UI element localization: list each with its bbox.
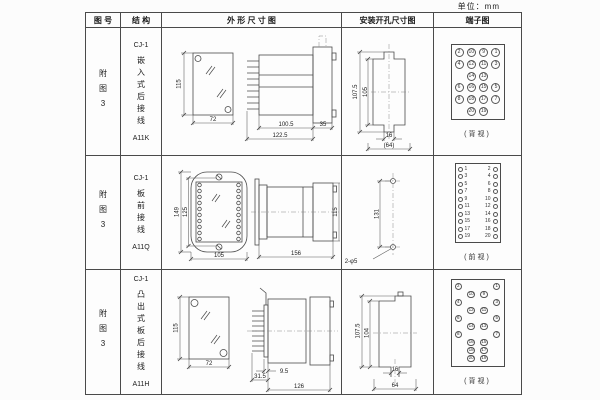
terminal-circle bbox=[493, 167, 498, 172]
terminal-circle: 15 bbox=[480, 339, 488, 347]
terminal-row: 1112 bbox=[458, 204, 498, 209]
terminal-row: 1718 bbox=[458, 227, 498, 232]
front-view: 115 72 bbox=[173, 295, 231, 369]
terminal-row: 1516 bbox=[458, 219, 498, 224]
dim-label: 72 bbox=[205, 361, 212, 367]
dim-label: 107.5 bbox=[355, 323, 361, 339]
row2-terminal-cell: 1234567891011121314151617181920 (前视) bbox=[434, 156, 521, 270]
terminal-number: 6 bbox=[488, 182, 491, 187]
terminal-row: 34 bbox=[458, 174, 498, 179]
terminal-circle: 13 bbox=[479, 72, 488, 81]
structure-desc: 凸出式板后接线 bbox=[136, 290, 147, 374]
terminal-row: 1615 bbox=[455, 339, 501, 347]
model-label: CJ-1 bbox=[134, 42, 149, 49]
terminal-number: 10 bbox=[485, 197, 491, 202]
terminal-row: 1413 bbox=[455, 323, 501, 331]
terminal-row: 818177 bbox=[455, 95, 501, 104]
terminal-number: 13 bbox=[465, 212, 471, 217]
terminal-circle bbox=[493, 219, 498, 224]
terminal-circle: 8 bbox=[455, 95, 464, 104]
terminal-circle: 11 bbox=[480, 307, 488, 315]
header-terminal: 端子图 bbox=[434, 13, 521, 28]
dim-label: 156 bbox=[290, 251, 301, 257]
terminal-circle bbox=[493, 189, 498, 194]
fig-no-label: 附图3 bbox=[98, 69, 109, 115]
terminal-number: 9 bbox=[465, 197, 468, 202]
terminal-circle bbox=[493, 227, 498, 232]
terminal-circle: 1 bbox=[491, 48, 500, 57]
row3-terminal-cell: 2110943121165141387161518172019 (背视) bbox=[434, 270, 521, 394]
terminal-circle: 17 bbox=[479, 95, 488, 104]
terminal-circle: 11 bbox=[479, 60, 488, 69]
side-view: 100.5 35 122.5 bbox=[245, 36, 336, 141]
terminal-circle: 5 bbox=[491, 83, 500, 92]
dim-label: 125 bbox=[183, 206, 189, 217]
terminal-circle bbox=[458, 174, 463, 179]
terminal-row: 1920 bbox=[458, 234, 498, 239]
terminal-number: 5 bbox=[465, 182, 468, 187]
dim-label: 149 bbox=[174, 206, 180, 217]
terminal-circle bbox=[493, 212, 498, 217]
dim-label: 16 bbox=[391, 367, 398, 373]
install-drawing-a11k: 107.5 105 16 (64) bbox=[343, 29, 433, 155]
row1-fig-no: 附图3 bbox=[86, 28, 121, 156]
dim-label: 9.5 bbox=[279, 369, 288, 375]
dim-label: 122.5 bbox=[272, 133, 288, 139]
terminal-circle bbox=[493, 182, 498, 187]
dim-label: 104 bbox=[364, 327, 370, 338]
row3-fig-no: 附图3 bbox=[86, 270, 121, 394]
row2-install-cell: 131 2-φ5 bbox=[342, 156, 434, 270]
terminal-circle bbox=[493, 174, 498, 179]
row2-fig-no: 附图3 bbox=[86, 156, 121, 270]
fig-no-label: 附图3 bbox=[98, 190, 109, 236]
terminal-row: 2019 bbox=[455, 107, 501, 116]
terminal-circle: 7 bbox=[491, 95, 500, 104]
terminal-circle: 17 bbox=[480, 347, 488, 355]
terminal-row: 78 bbox=[458, 189, 498, 194]
model-label: CJ-1 bbox=[134, 276, 149, 283]
unit-label: 单位：mm bbox=[458, 1, 500, 12]
install-drawing-a11h: 107.5 104 16 64 bbox=[343, 271, 433, 393]
terminal-circle bbox=[458, 234, 463, 239]
terminal-number: 2 bbox=[488, 167, 491, 172]
terminal-row: 1314 bbox=[458, 212, 498, 217]
terminal-circle: 1 bbox=[493, 283, 501, 291]
header-structure: 结 构 bbox=[121, 13, 162, 28]
terminal-circle bbox=[493, 234, 498, 239]
terminal-circle: 15 bbox=[479, 83, 488, 92]
terminal-circle: 20 bbox=[467, 107, 476, 116]
row2-outline-cell: 149 125 105 bbox=[162, 156, 342, 270]
outline-drawing-a11k: 115 72 100.5 bbox=[163, 29, 341, 155]
row1-structure: CJ-1 嵌入式后接线 A11K bbox=[121, 28, 162, 156]
terminal-circle: 3 bbox=[491, 60, 500, 69]
terminal-circle bbox=[493, 204, 498, 209]
type-code: A11Q bbox=[132, 244, 149, 251]
terminal-number: 4 bbox=[488, 174, 491, 179]
terminal-circle bbox=[493, 197, 498, 202]
terminal-circle bbox=[458, 219, 463, 224]
row3-outline-cell: 115 72 9 bbox=[162, 270, 342, 394]
terminal-caption: (背视) bbox=[464, 376, 491, 386]
row1-install-cell: 107.5 105 16 (64) bbox=[342, 28, 434, 156]
terminal-row: 1211 bbox=[455, 307, 501, 315]
terminal-number: 12 bbox=[485, 204, 491, 209]
terminal-circle bbox=[458, 182, 463, 187]
terminal-diagram-a11h: 2110943121165141387161518172019 bbox=[451, 279, 505, 367]
terminal-circle: 8 bbox=[455, 331, 463, 339]
terminal-row: 21 bbox=[455, 283, 501, 291]
terminal-number: 14 bbox=[485, 212, 491, 217]
terminal-number: 20 bbox=[485, 234, 491, 239]
terminal-circle: 19 bbox=[479, 107, 488, 116]
terminal-circle: 19 bbox=[480, 355, 488, 363]
dim-label: 107.5 bbox=[353, 83, 359, 99]
dim-label: 115 bbox=[176, 78, 182, 88]
terminal-number: 1 bbox=[465, 167, 468, 172]
terminal-circle: 14 bbox=[467, 72, 476, 81]
dim-label: (64) bbox=[383, 143, 394, 149]
terminal-circle: 20 bbox=[467, 355, 475, 363]
terminal-row: 65 bbox=[455, 315, 501, 323]
terminal-circle: 6 bbox=[455, 315, 463, 323]
dim-label: 105 bbox=[213, 253, 224, 259]
terminal-circle: 9 bbox=[479, 48, 488, 57]
terminal-circle: 10 bbox=[467, 291, 475, 299]
structure-desc: 板前接线 bbox=[135, 189, 146, 237]
type-code: A11K bbox=[133, 135, 150, 142]
terminal-circle: 4 bbox=[455, 60, 464, 69]
terminal-number: 3 bbox=[465, 174, 468, 179]
dim-label: 115 bbox=[333, 206, 339, 216]
dim-label: 115 bbox=[173, 323, 179, 333]
hole-label: 2-φ5 bbox=[344, 259, 357, 265]
dim-label: 64 bbox=[391, 383, 398, 389]
terminal-number: 16 bbox=[485, 219, 491, 224]
terminal-circle bbox=[458, 212, 463, 217]
terminal-diagram-a11q: 1234567891011121314151617181920 bbox=[455, 163, 501, 243]
terminal-circle: 3 bbox=[493, 299, 501, 307]
row2-structure: CJ-1 板前接线 A11Q bbox=[121, 156, 162, 270]
terminal-circle bbox=[458, 167, 463, 172]
row3-install-cell: 107.5 104 16 64 bbox=[342, 270, 434, 394]
terminal-number: 8 bbox=[488, 189, 491, 194]
manual-page: 单位：mm 图 号 结 构 外 形 尺 寸 图 安装开孔尺寸图 端子图 附图3 … bbox=[0, 0, 600, 400]
terminal-row: 910 bbox=[458, 197, 498, 202]
fig-no-label: 附图3 bbox=[98, 309, 109, 355]
side-view: 156 115 bbox=[251, 179, 340, 259]
front-view: 149 125 105 bbox=[174, 170, 249, 261]
terminal-circle bbox=[458, 204, 463, 209]
dim-label: 100.5 bbox=[278, 122, 294, 128]
terminal-circle bbox=[458, 189, 463, 194]
terminal-caption: (背视) bbox=[464, 129, 491, 139]
terminal-row: 1413 bbox=[455, 72, 501, 81]
terminal-circle: 4 bbox=[455, 299, 463, 307]
terminal-caption: (前视) bbox=[464, 252, 491, 262]
terminal-number: 17 bbox=[465, 227, 471, 232]
header-fig-no: 图 号 bbox=[86, 13, 121, 28]
terminal-circle: 5 bbox=[493, 315, 501, 323]
terminal-circle: 12 bbox=[467, 307, 475, 315]
type-code: A11H bbox=[133, 381, 150, 388]
terminal-circle: 16 bbox=[467, 83, 476, 92]
structure-desc: 嵌入式后接线 bbox=[135, 56, 146, 128]
terminal-number: 18 bbox=[485, 227, 491, 232]
header-outline: 外 形 尺 寸 图 bbox=[162, 13, 342, 28]
terminal-circle: 13 bbox=[480, 323, 488, 331]
terminal-number: 11 bbox=[465, 204, 470, 209]
dim-label: 31.5 bbox=[254, 374, 266, 380]
install-drawing-a11q: 131 2-φ5 bbox=[343, 157, 433, 269]
terminal-circle bbox=[458, 227, 463, 232]
dim-label: 126 bbox=[293, 384, 304, 390]
spec-table: 图 号 结 构 外 形 尺 寸 图 安装开孔尺寸图 端子图 附图3 CJ-1 嵌… bbox=[85, 12, 522, 395]
dim-label: 16 bbox=[385, 133, 392, 139]
terminal-circle: 16 bbox=[467, 339, 475, 347]
terminal-row: 87 bbox=[455, 331, 501, 339]
dim-label: 35 bbox=[319, 122, 326, 128]
terminal-number: 15 bbox=[465, 219, 471, 224]
terminal-row: 1817 bbox=[455, 347, 501, 355]
terminal-row: 109 bbox=[455, 291, 501, 299]
terminal-row: 12 bbox=[458, 167, 498, 172]
row3-structure: CJ-1 凸出式板后接线 A11H bbox=[121, 270, 162, 394]
terminal-circle: 14 bbox=[467, 323, 475, 331]
dim-label: 72 bbox=[209, 117, 216, 123]
terminal-row: 56 bbox=[458, 182, 498, 187]
terminal-circle: 2 bbox=[455, 283, 463, 291]
row1-terminal-cell: 2109141211314136161558181772019 (背视) bbox=[434, 28, 521, 156]
terminal-row: 616155 bbox=[455, 83, 501, 92]
terminal-row: 412113 bbox=[455, 60, 501, 69]
terminal-circle: 2 bbox=[455, 48, 464, 57]
front-view: 115 72 bbox=[176, 51, 235, 125]
outline-drawing-a11q: 149 125 105 bbox=[163, 157, 341, 269]
terminal-number: 19 bbox=[465, 234, 471, 239]
terminal-circle: 18 bbox=[467, 347, 475, 355]
terminal-circle: 12 bbox=[467, 60, 476, 69]
terminal-circle bbox=[458, 197, 463, 202]
dim-label: 131 bbox=[374, 208, 380, 219]
terminal-circle: 9 bbox=[480, 291, 488, 299]
dim-label: 105 bbox=[363, 86, 369, 97]
outline-drawing-a11h: 115 72 9 bbox=[163, 271, 341, 393]
terminal-row: 21091 bbox=[455, 48, 501, 57]
terminal-diagram-a11k: 2109141211314136161558181772019 bbox=[451, 44, 505, 120]
header-install: 安装开孔尺寸图 bbox=[342, 13, 434, 28]
terminal-circle: 7 bbox=[493, 331, 501, 339]
model-label: CJ-1 bbox=[134, 175, 149, 182]
row1-outline-cell: 115 72 100.5 bbox=[162, 28, 342, 156]
terminal-circle: 10 bbox=[467, 48, 476, 57]
terminal-row: 43 bbox=[455, 299, 501, 307]
side-view: 9.5 31.5 126 bbox=[247, 288, 338, 392]
terminal-number: 7 bbox=[465, 189, 468, 194]
terminal-circle: 6 bbox=[455, 83, 464, 92]
terminal-circle: 18 bbox=[467, 95, 476, 104]
terminal-row: 2019 bbox=[455, 355, 501, 363]
